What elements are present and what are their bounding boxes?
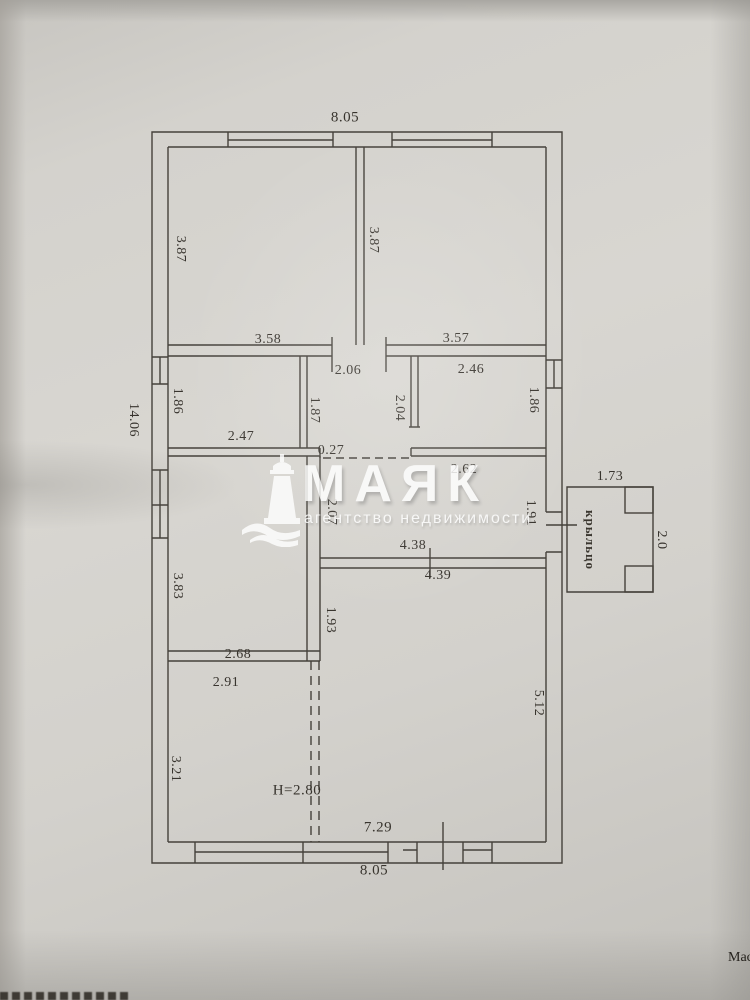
porch-label: крыльцо [582,510,598,570]
dim-hall-top-width: 2.62 [451,462,478,478]
dim-room-mr-width: 2.46 [458,362,485,378]
dim-overall-top-width: 8.05 [331,110,359,127]
dim-porch-width: 1.73 [597,469,624,485]
dim-corridor-width: 2.06 [335,363,362,379]
scanned-floor-plan-photo: 8.05 14.06 3.87 3.87 3.58 3.57 2.06 2.46… [0,0,750,1000]
dim-hall-right-height: 1.91 [522,500,538,527]
dim-room-tl-width: 3.58 [255,332,282,348]
floor-plan-drawing: 8.05 14.06 3.87 3.87 3.58 3.57 2.06 2.46… [0,0,750,1000]
clipped-text-fragment [0,992,130,1000]
dim-bottom-inner-width: 7.29 [364,820,392,837]
dim-living-height: 5.12 [530,690,546,717]
dim-room-ml-height: 1.86 [169,388,185,415]
floor-plan-linework [0,0,750,1000]
dim-room-ml-width: 2.47 [228,429,255,445]
dim-living-top-width: 4.39 [425,568,452,584]
dim-room-mr-height: 1.86 [525,387,541,414]
dim-room-tr-height: 3.87 [365,227,381,254]
dim-room-l3-height: 3.83 [169,573,185,600]
dim-room-tl-height: 3.87 [172,236,188,263]
dim-ceiling-height: H=2.80 [273,783,322,800]
dim-room-l3-width: 2.68 [225,647,252,663]
dim-overall-bottom-width: 8.05 [360,863,388,880]
dim-overall-left-height: 14.06 [125,403,141,437]
dim-corridor-right-height: 2.04 [391,395,407,422]
dim-room-tr-width: 3.57 [443,331,470,347]
dim-hall-left-height: 2.07 [323,499,339,526]
dim-hall-bottom-width: 4.38 [400,538,427,554]
scale-label-fragment: Масш [728,950,750,966]
dim-room-l4-width: 2.91 [213,675,240,691]
dim-porch-depth: 2.0 [653,531,669,550]
dim-wall-stub: 0.27 [318,443,345,459]
dim-partition-height: 1.93 [322,607,338,634]
dim-corridor-height: 1.87 [306,397,322,424]
dim-room-l4-height: 3.21 [167,756,183,783]
